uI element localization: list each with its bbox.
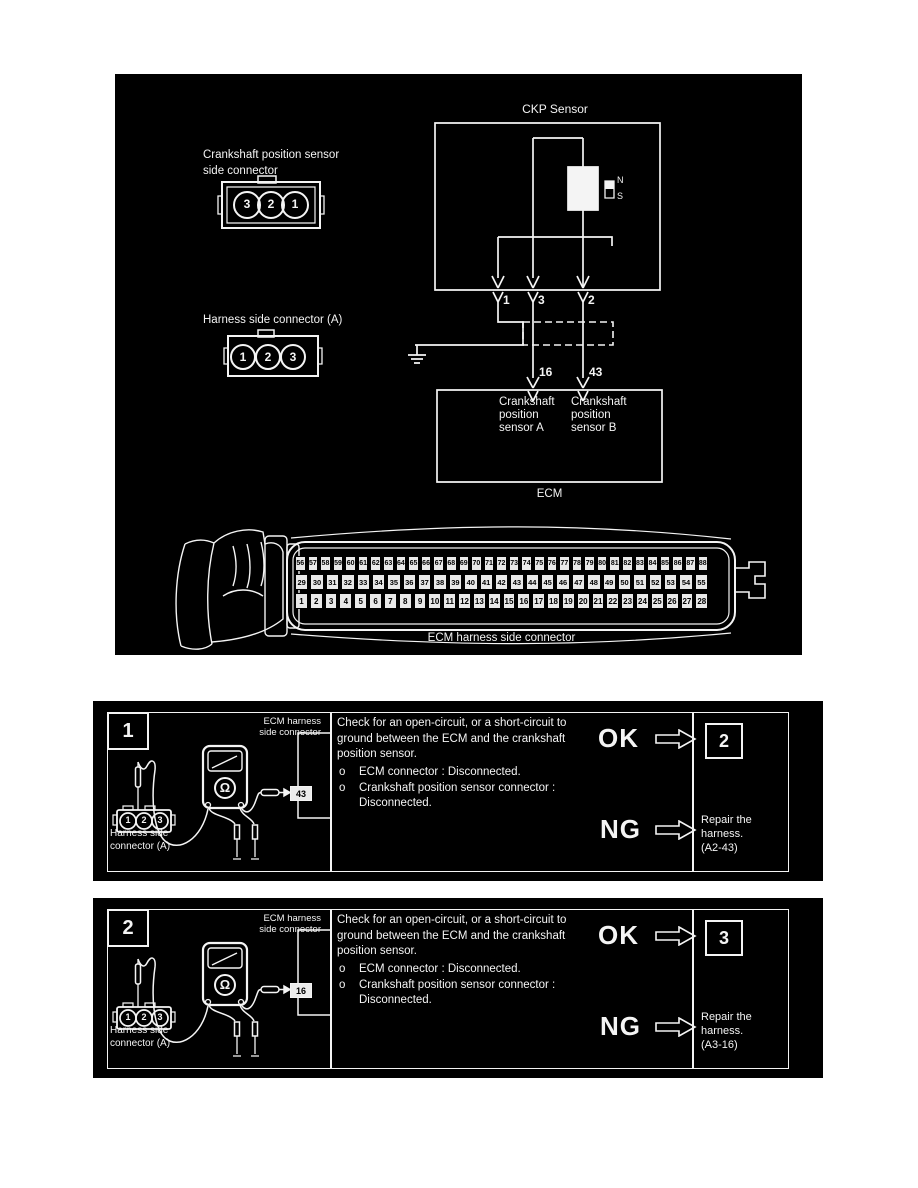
ecm-pin-cell: 3 — [325, 593, 338, 609]
step-connector-pin: 3 — [152, 815, 168, 825]
test-step-panel-2: 2 — [93, 898, 823, 1078]
ecm-pin-cell: 23 — [621, 593, 634, 609]
sensor-connector-label-line2: side connector — [203, 164, 278, 178]
bullet-item: oCrankshaft position sensor connector : … — [339, 781, 639, 812]
ecm-sensor-a-line3: sensor A — [499, 421, 544, 435]
ecm-sensor-a-line1: Crankshaft — [499, 395, 555, 409]
ecm-label: ECM — [437, 487, 662, 501]
ecm-pin-cell: 46 — [556, 574, 569, 590]
harness-connector-pin: 2 — [259, 350, 277, 364]
ecm-pin-cell: 47 — [572, 574, 585, 590]
ecm-pin-cell: 10 — [428, 593, 441, 609]
ecm-sensor-b-line2: position — [571, 408, 611, 422]
ok-arrow-icon — [655, 729, 697, 749]
instruction-text: Check for an open-circuit, or a short-ci… — [337, 716, 595, 763]
ng-label: NG — [600, 1011, 641, 1042]
bullet-item: oECM connector : Disconnected. — [339, 765, 639, 781]
ecm-pin-cell: 60 — [345, 556, 356, 571]
ckp-sensor-label: CKP Sensor — [485, 102, 625, 116]
harness-connector-pin: 3 — [284, 350, 302, 364]
ecm-pin-row-56-88: 5657585960616263646566676869707172737475… — [295, 556, 708, 571]
ecm-pin-cell: 49 — [603, 574, 616, 590]
ecm-pin-cell: 21 — [592, 593, 605, 609]
ecm-pin-cell: 22 — [606, 593, 619, 609]
magnet-n-label: N — [617, 175, 624, 185]
harness-connector-label: Harness side connector (A) — [203, 313, 342, 327]
instruction-bullets: oECM connector : Disconnected. oCranksha… — [339, 765, 639, 812]
divider — [330, 712, 332, 871]
ecm-pin-cell: 54 — [679, 574, 692, 590]
ecm-pin-row-29-55: 2930313233343536373839404142434445464748… — [295, 574, 708, 590]
ng-arrow-icon — [655, 1017, 697, 1037]
ecm-pin-cell: 73 — [509, 556, 520, 571]
ecm-pin-cell: 66 — [421, 556, 432, 571]
ecm-pin-cell: 16 — [517, 593, 530, 609]
step-connector-pin: 3 — [152, 1012, 168, 1022]
harness-side-label: Harness side connector (A) — [110, 1024, 170, 1050]
ecm-pin-cell: 25 — [651, 593, 664, 609]
ecm-pin-cell: 15 — [503, 593, 516, 609]
ecm-pin-cell: 40 — [464, 574, 477, 590]
ecm-pin-cell: 29 — [295, 574, 308, 590]
ecm-pin-cell: 27 — [681, 593, 694, 609]
wire-pin-3: 3 — [538, 293, 545, 307]
ecm-pin-cell: 43 — [510, 574, 523, 590]
ecm-pin-cell: 78 — [572, 556, 583, 571]
ecm-pin-cell: 6 — [369, 593, 382, 609]
ecm-pin-cell: 63 — [383, 556, 394, 571]
ecm-pin-cell: 71 — [484, 556, 495, 571]
ecm-pin-cell: 85 — [660, 556, 671, 571]
ng-action-text: Repair the harness. (A2-43) — [701, 813, 752, 855]
ecm-pin-cell: 45 — [541, 574, 554, 590]
sensor-connector-pin: 3 — [238, 197, 256, 211]
manual-page: CKP Sensor Crankshaft position sensor si… — [0, 0, 918, 1188]
ecm-pin-cell: 81 — [609, 556, 620, 571]
ng-action-text: Repair the harness. (A3-16) — [701, 1010, 752, 1052]
ecm-pin-cell: 8 — [399, 593, 412, 609]
ecm-pin-cell: 58 — [320, 556, 331, 571]
ecm-pin-cell: 39 — [449, 574, 462, 590]
ecm-pin-cell: 30 — [310, 574, 323, 590]
step-connector-pin: 2 — [136, 815, 152, 825]
ecm-pin-cell: 9 — [414, 593, 427, 609]
ecm-pin-cell: 38 — [433, 574, 446, 590]
ecm-pin-cell: 61 — [358, 556, 369, 571]
bullet-item: oECM connector : Disconnected. — [339, 962, 639, 978]
ecm-pin-cell: 75 — [534, 556, 545, 571]
ecm-harness-connector-label: ECM harness side connector — [295, 631, 708, 645]
test-step-panel-1: 1 — [93, 701, 823, 881]
ecm-pin-cell: 74 — [521, 556, 532, 571]
ecm-pin-cell: 42 — [495, 574, 508, 590]
instruction-bullets: oECM connector : Disconnected. oCranksha… — [339, 962, 639, 1009]
ecm-pin-cell: 4 — [339, 593, 352, 609]
magnet-s-label: S — [617, 191, 623, 201]
ecm-pin-cell: 86 — [672, 556, 683, 571]
ecm-pin-cell: 26 — [666, 593, 679, 609]
harness-connector-pin: 1 — [234, 350, 252, 364]
ecm-harness-label: ECM harness side connector — [211, 716, 321, 738]
ok-label: OK — [598, 920, 639, 951]
ecm-pin-cell: 48 — [587, 574, 600, 590]
step-connector-pin: 1 — [120, 1012, 136, 1022]
ecm-pin-cell: 57 — [308, 556, 319, 571]
ecm-pin-cell: 50 — [618, 574, 631, 590]
ecm-pin-cell: 12 — [458, 593, 471, 609]
ecm-pin-cell: 2 — [310, 593, 323, 609]
step-connector-pin: 1 — [120, 815, 136, 825]
ok-label: OK — [598, 723, 639, 754]
sensor-connector-label-line1: Crankshaft position sensor — [203, 148, 339, 162]
wiring-diagram-panel: CKP Sensor Crankshaft position sensor si… — [115, 74, 802, 655]
ecm-pin-cell: 70 — [471, 556, 482, 571]
ecm-pin-cell: 44 — [526, 574, 539, 590]
ecm-pin-cell: 53 — [664, 574, 677, 590]
ecm-pin-cell: 65 — [408, 556, 419, 571]
ok-target-step: 3 — [705, 920, 743, 956]
ecm-pin-cell: 67 — [433, 556, 444, 571]
ecm-pin-cell: 5 — [354, 593, 367, 609]
ecm-pin-cell: 14 — [488, 593, 501, 609]
ecm-pin-cell: 20 — [577, 593, 590, 609]
ecm-pin-cell: 32 — [341, 574, 354, 590]
ecm-pin-cell: 87 — [685, 556, 696, 571]
ecm-pin-cell: 35 — [387, 574, 400, 590]
ecm-harness-label: ECM harness side connector — [211, 913, 321, 935]
ecm-pin-row-1-28: 1234567891011121314151617181920212223242… — [295, 593, 708, 609]
ecm-pin-cell: 13 — [473, 593, 486, 609]
ecm-pin-cell: 19 — [562, 593, 575, 609]
ecm-pin-cell: 56 — [295, 556, 306, 571]
ecm-pin-cell: 77 — [559, 556, 570, 571]
ecm-pin-cell: 59 — [333, 556, 344, 571]
ohm-symbol: Ω — [216, 977, 234, 992]
ng-arrow-icon — [655, 820, 697, 840]
ecm-pin-cell: 72 — [496, 556, 507, 571]
ecm-pin-cell: 7 — [384, 593, 397, 609]
ecm-pin-cell: 33 — [357, 574, 370, 590]
ecm-pin-cell: 83 — [635, 556, 646, 571]
ecm-sensor-b-line1: Crankshaft — [571, 395, 627, 409]
ecm-pin-cell: 28 — [695, 593, 708, 609]
harness-side-label: Harness side connector (A) — [110, 827, 170, 853]
ecm-sensor-a-line2: position — [499, 408, 539, 422]
ecm-pin-cell: 36 — [403, 574, 416, 590]
ecm-pin-cell: 82 — [622, 556, 633, 571]
ohm-symbol: Ω — [216, 780, 234, 795]
probe-pin-tag: 16 — [290, 983, 312, 998]
ecm-pin-cell: 34 — [372, 574, 385, 590]
ng-label: NG — [600, 814, 641, 845]
bullet-item: oCrankshaft position sensor connector : … — [339, 978, 639, 1009]
ecm-pin-cell: 84 — [647, 556, 658, 571]
sensor-connector-pin: 1 — [286, 197, 304, 211]
ecm-pin-cell: 68 — [446, 556, 457, 571]
ecm-pin-cell: 69 — [459, 556, 470, 571]
ecm-pin-cell: 51 — [633, 574, 646, 590]
ecm-pin-cell: 64 — [396, 556, 407, 571]
ecm-pin-cell: 31 — [326, 574, 339, 590]
ok-target-step: 2 — [705, 723, 743, 759]
ecm-pin-cell: 11 — [443, 593, 456, 609]
step-connector-pin: 2 — [136, 1012, 152, 1022]
ecm-pin-43: 43 — [589, 365, 602, 379]
wire-pin-2: 2 — [588, 293, 595, 307]
ecm-pin-16: 16 — [539, 365, 552, 379]
divider — [330, 909, 332, 1068]
ok-arrow-icon — [655, 926, 697, 946]
ecm-pin-cell: 88 — [698, 556, 709, 571]
instruction-text: Check for an open-circuit, or a short-ci… — [337, 913, 595, 960]
ecm-pin-cell: 41 — [480, 574, 493, 590]
ecm-pin-cell: 1 — [295, 593, 308, 609]
ecm-pin-cell: 79 — [584, 556, 595, 571]
ecm-pin-cell: 17 — [532, 593, 545, 609]
ecm-pin-cell: 80 — [597, 556, 608, 571]
ecm-pin-cell: 37 — [418, 574, 431, 590]
wire-pin-1: 1 — [503, 293, 510, 307]
ecm-pin-cell: 55 — [695, 574, 708, 590]
ecm-pin-cell: 76 — [547, 556, 558, 571]
ecm-pin-cell: 52 — [649, 574, 662, 590]
ecm-pin-cell: 24 — [636, 593, 649, 609]
ecm-sensor-b-line3: sensor B — [571, 421, 616, 435]
ecm-pin-cell: 62 — [370, 556, 381, 571]
sensor-connector-pin: 2 — [262, 197, 280, 211]
probe-pin-tag: 43 — [290, 786, 312, 801]
ecm-pin-cell: 18 — [547, 593, 560, 609]
